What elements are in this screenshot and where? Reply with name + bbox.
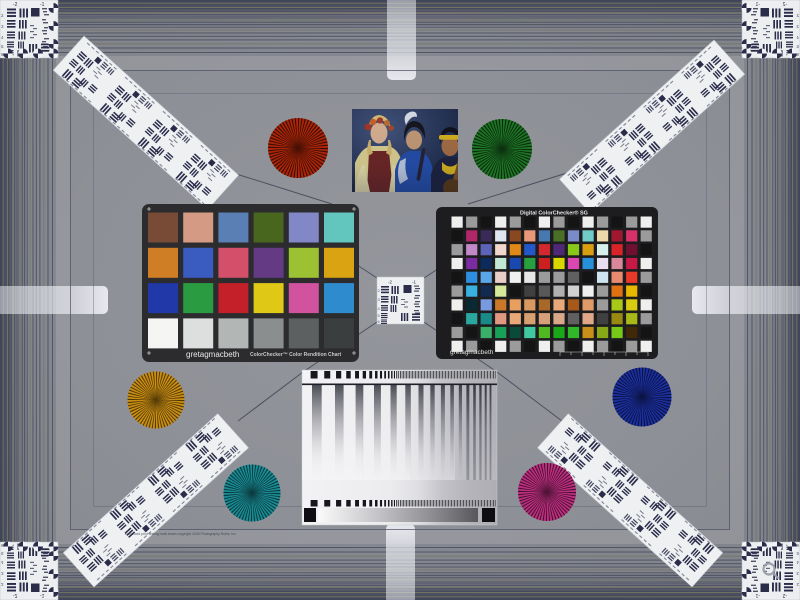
svg-text:ColorChecker™ Color Rendition: ColorChecker™ Color Rendition Chart [250,352,341,358]
svg-text:gretagmacbeth: gretagmacbeth [450,349,494,356]
svg-text:Digital ColorChecker® SG: Digital ColorChecker® SG [520,210,588,217]
svg-text:gretagmacbeth: gretagmacbeth [186,350,239,359]
svg-text:Enhanced print testing multi-b: Enhanced print testing multi-beam copyri… [125,532,236,536]
svg-text:-1: -1 [412,280,416,285]
svg-text:-2: -2 [388,280,392,285]
